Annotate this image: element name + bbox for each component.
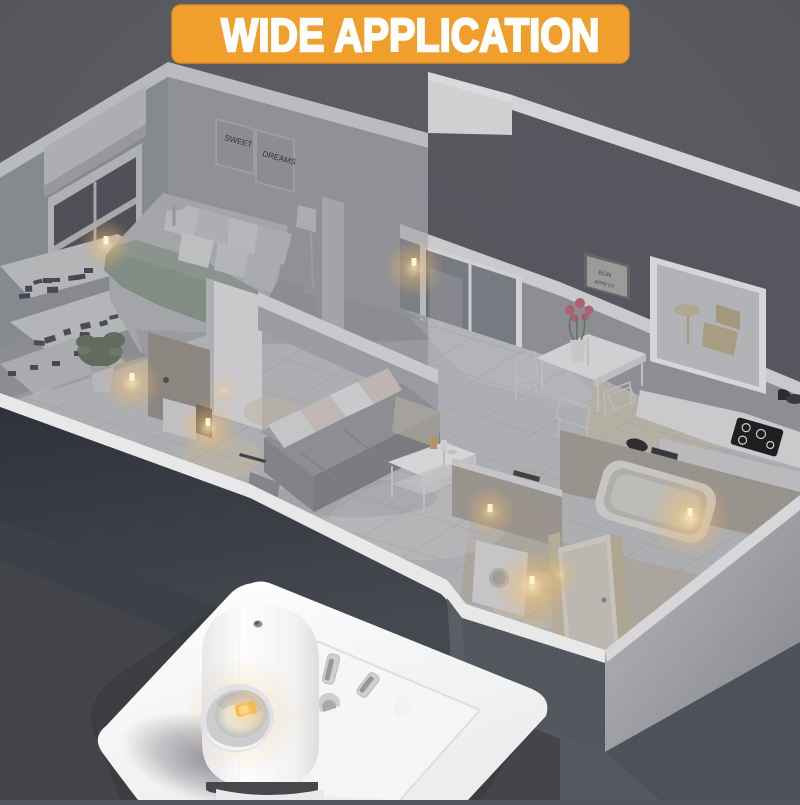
svg-text:WIDE APPLICATION: WIDE APPLICATION [221,10,599,62]
